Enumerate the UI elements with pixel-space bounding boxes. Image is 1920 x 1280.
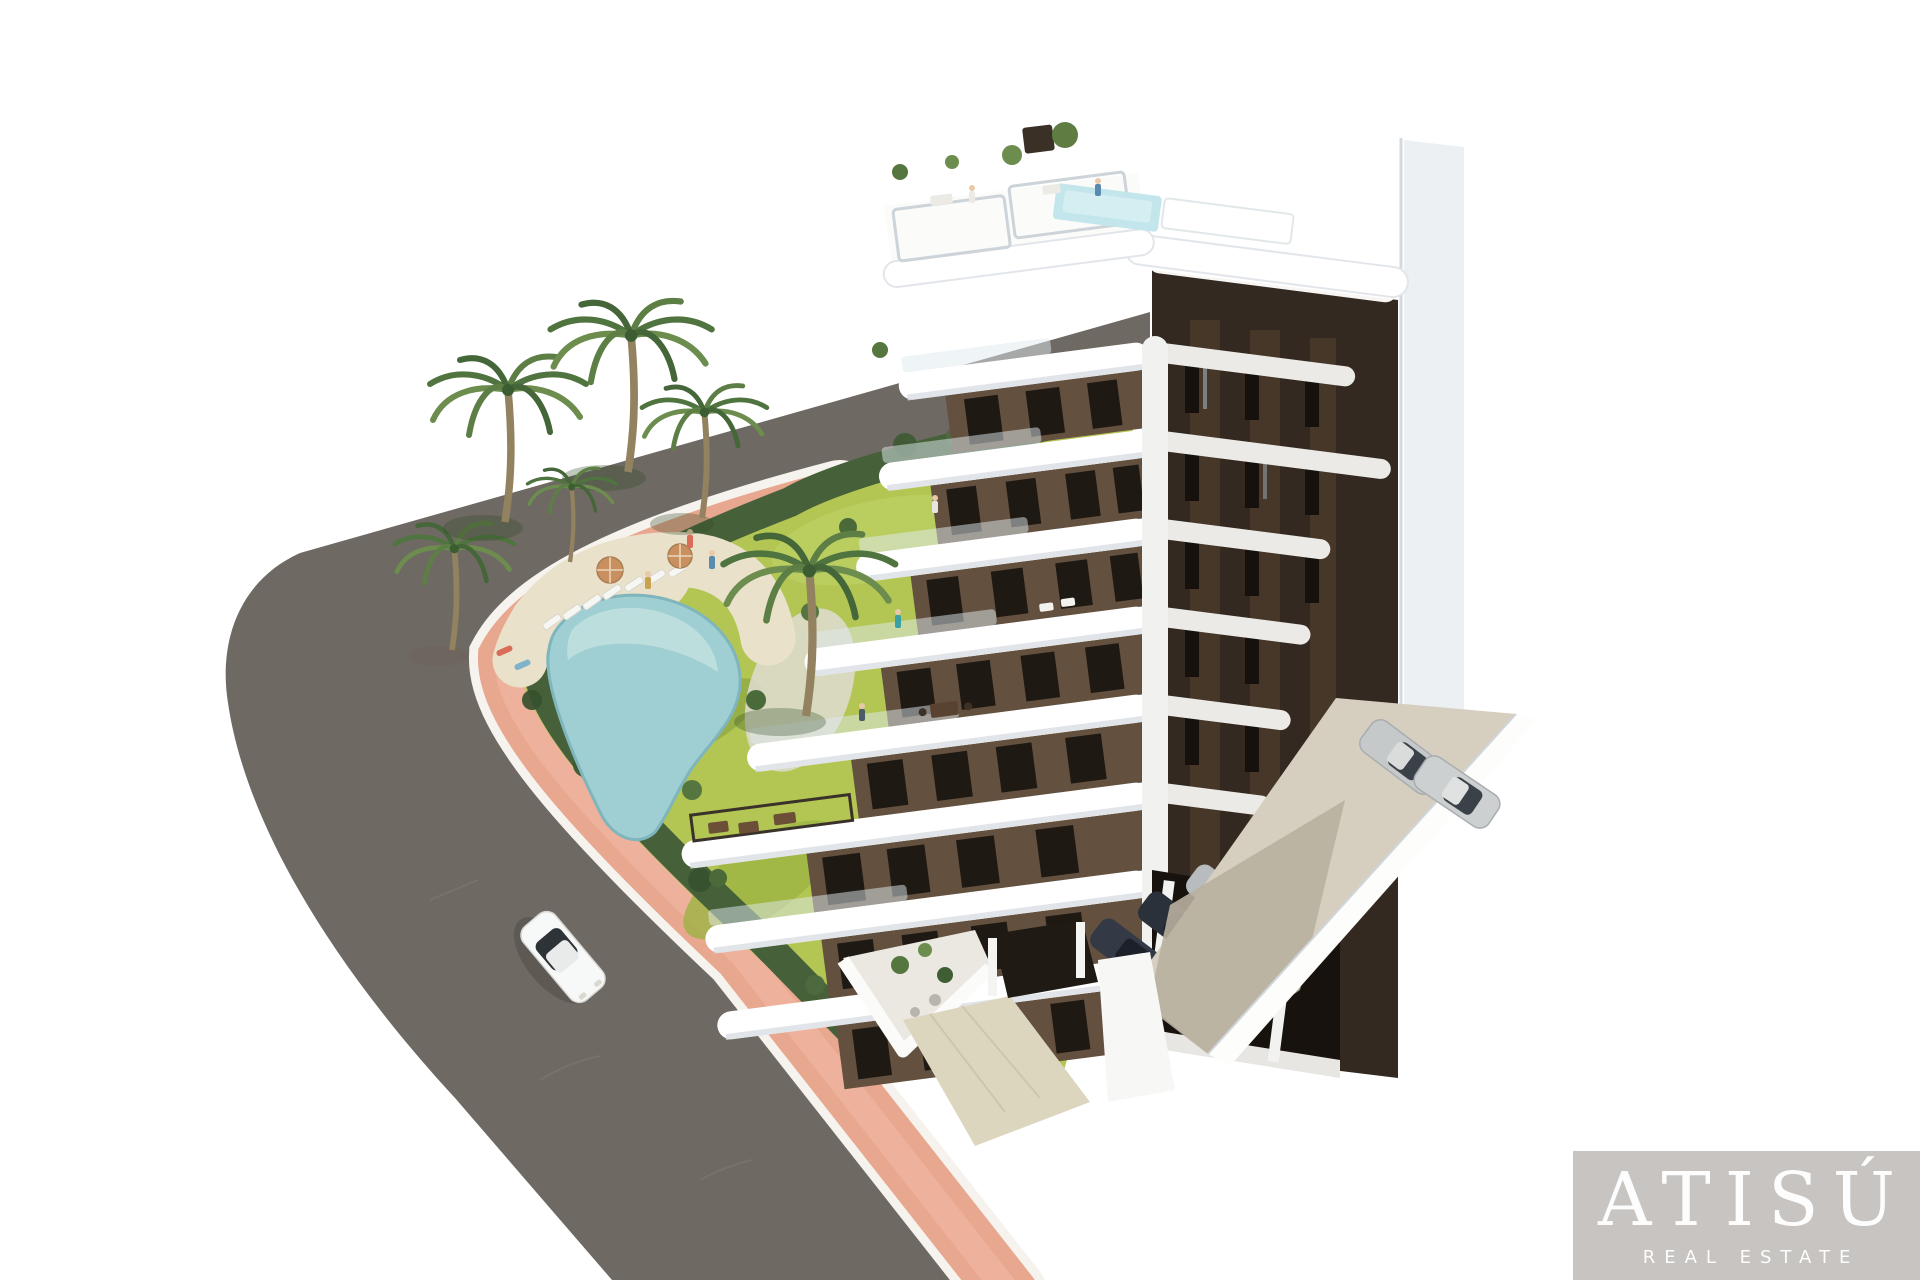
brand-name: ATISÚ bbox=[1584, 1157, 1909, 1243]
palm-shadow bbox=[734, 708, 826, 736]
rooftop-pergola bbox=[1022, 124, 1055, 153]
tower-face-shade bbox=[1404, 140, 1464, 712]
gate-post bbox=[1076, 922, 1085, 978]
palm-shadow bbox=[443, 515, 523, 541]
palm-shadow bbox=[408, 646, 468, 666]
scene-svg bbox=[0, 0, 1920, 1280]
gate-post bbox=[988, 938, 997, 996]
render-canvas: ATISÚ REAL ESTATE bbox=[0, 0, 1920, 1280]
brand-tagline: REAL ESTATE bbox=[1634, 1247, 1860, 1268]
brand-watermark: ATISÚ REAL ESTATE bbox=[1573, 1151, 1920, 1280]
